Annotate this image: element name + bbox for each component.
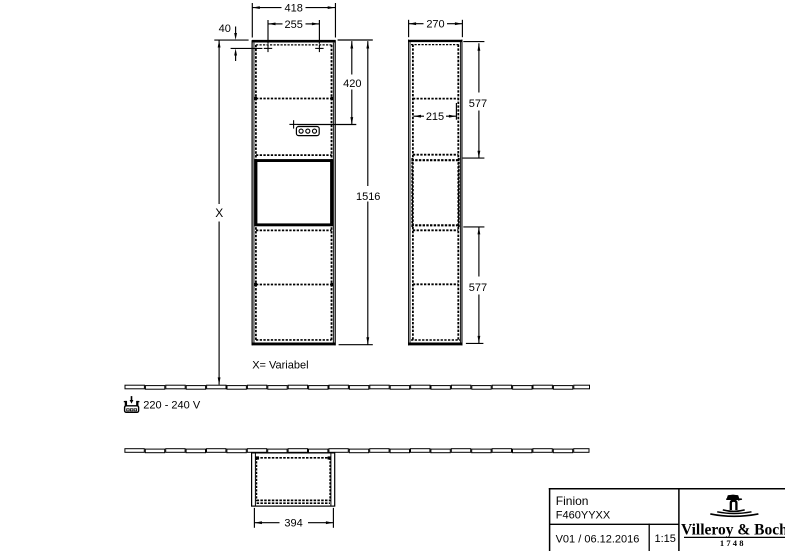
svg-text:255: 255 [285,19,303,31]
svg-text:577: 577 [469,282,487,294]
svg-text:220 - 240 V: 220 - 240 V [143,399,201,411]
svg-text:215: 215 [426,111,444,123]
svg-text:1:15: 1:15 [655,533,676,545]
svg-text:577: 577 [469,98,487,110]
svg-text:394: 394 [284,518,302,530]
svg-text:418: 418 [285,3,303,15]
svg-text:1516: 1516 [356,191,380,203]
svg-text:X: X [215,206,223,220]
svg-text:420: 420 [343,78,361,90]
svg-text:X= Variabel: X= Variabel [252,359,308,371]
svg-text:V01 / 06.12.2016: V01 / 06.12.2016 [556,534,640,546]
svg-text:F460YYXX: F460YYXX [556,509,611,521]
svg-text:Finion: Finion [556,494,589,508]
svg-text:40: 40 [219,23,231,35]
svg-text:270: 270 [426,19,444,31]
svg-text:1748: 1748 [720,538,746,548]
svg-text:Villeroy & Boch: Villeroy & Boch [681,521,785,538]
